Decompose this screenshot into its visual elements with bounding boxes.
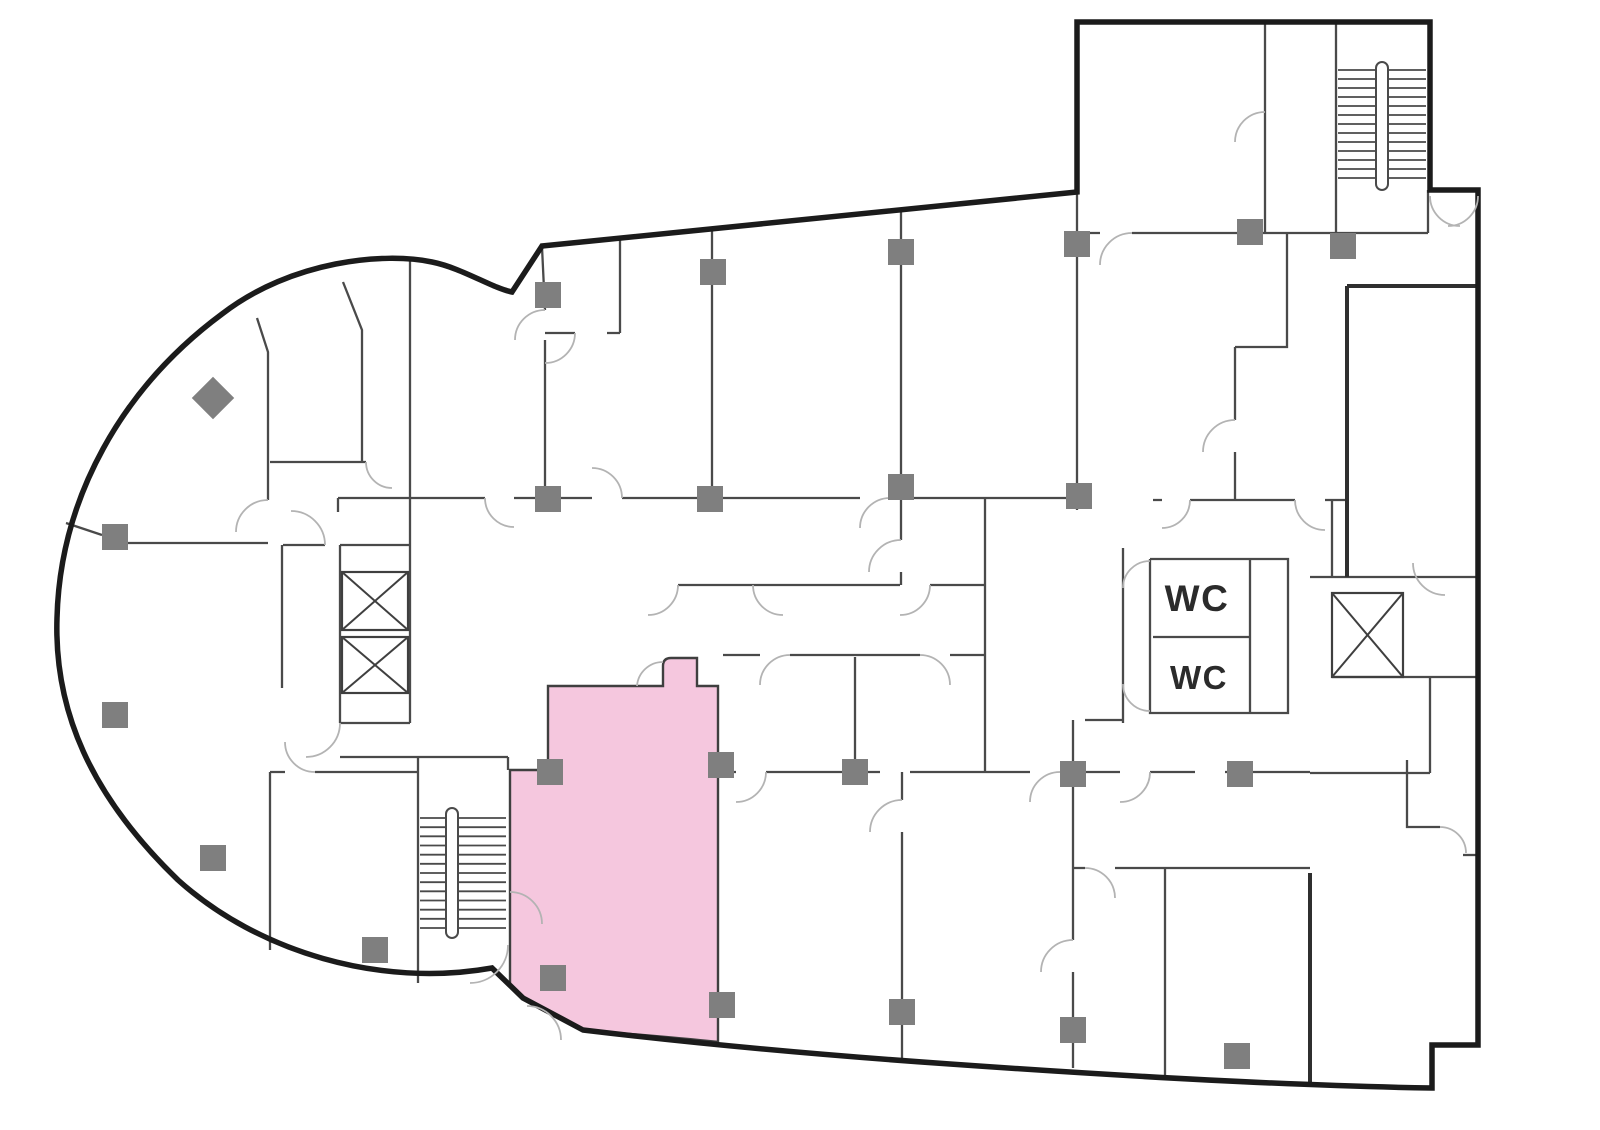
- diamond-column-marker: [192, 377, 234, 419]
- column-marker: [362, 937, 388, 963]
- column-marker: [535, 282, 561, 308]
- floor-plan-page: WC WC: [0, 0, 1600, 1130]
- column-marker: [709, 992, 735, 1018]
- column-marker: [842, 759, 868, 785]
- column-marker: [1064, 231, 1090, 257]
- column-marker: [888, 239, 914, 265]
- interior-walls-layer: [66, 22, 1478, 1078]
- column-marker: [708, 752, 734, 778]
- column-marker: [1060, 761, 1086, 787]
- structural-walls-layer: [1310, 286, 1478, 1085]
- wc-lower-label: WC: [1170, 659, 1228, 696]
- column-marker: [102, 702, 128, 728]
- column-marker: [1227, 761, 1253, 787]
- wc-upper-label: WC: [1165, 578, 1230, 619]
- column-marker: [1066, 483, 1092, 509]
- column-marker: [700, 259, 726, 285]
- column-marker: [537, 759, 563, 785]
- column-marker: [200, 845, 226, 871]
- column-marker: [697, 486, 723, 512]
- column-marker: [888, 474, 914, 500]
- elevator-icon: [342, 572, 1403, 693]
- column-marker: [1060, 1017, 1086, 1043]
- structural-columns-layer: [102, 219, 1356, 1069]
- column-marker: [540, 965, 566, 991]
- floor-plan-canvas: WC WC: [0, 0, 1600, 1130]
- column-marker: [889, 999, 915, 1025]
- column-marker: [535, 486, 561, 512]
- column-marker: [102, 524, 128, 550]
- column-marker: [1330, 233, 1356, 259]
- column-marker: [1237, 219, 1263, 245]
- column-marker: [1224, 1043, 1250, 1069]
